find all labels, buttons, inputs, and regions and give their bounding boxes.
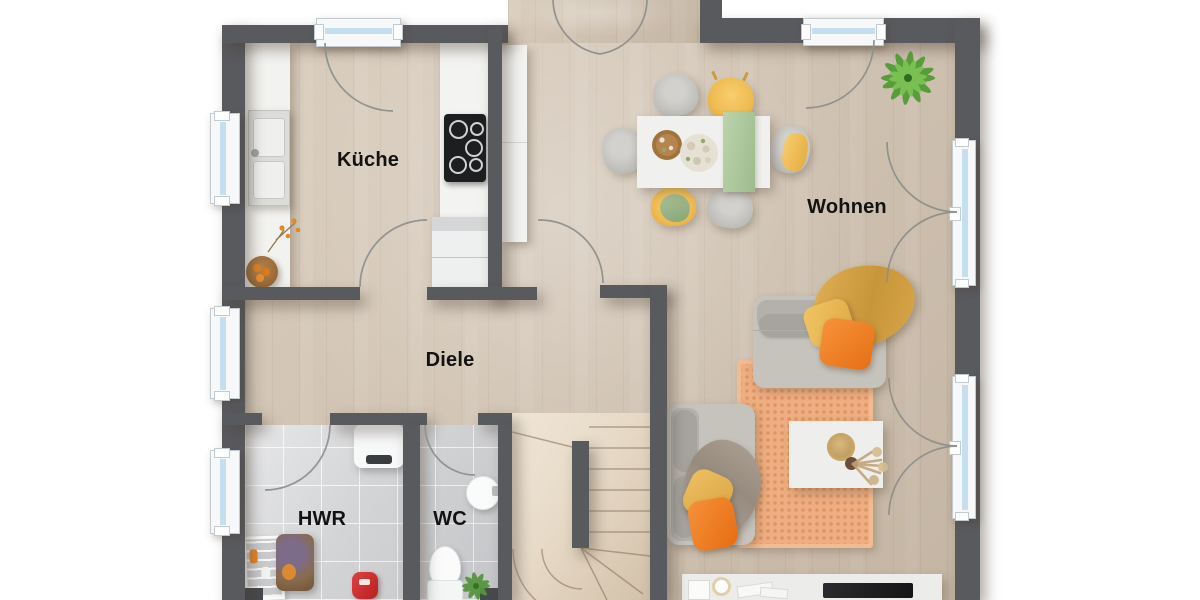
refrigerator-top bbox=[432, 217, 490, 231]
window-frame-tab bbox=[393, 24, 403, 40]
door-glass bbox=[962, 385, 968, 510]
room-label-kueche: Küche bbox=[337, 149, 399, 172]
window-frame-tab bbox=[214, 448, 230, 458]
cabinet-seam bbox=[502, 142, 527, 143]
decor-ring bbox=[712, 577, 731, 596]
fruit bbox=[256, 274, 264, 282]
laundry-item bbox=[261, 567, 270, 579]
window-frame-tab bbox=[214, 391, 230, 401]
door-glass bbox=[962, 149, 968, 277]
glazed-door-top-right bbox=[803, 18, 884, 46]
window-glass bbox=[220, 122, 226, 195]
refrigerator-seam bbox=[432, 257, 490, 258]
burner-icon bbox=[449, 120, 468, 139]
room-label-wohnen: Wohnen bbox=[807, 196, 887, 219]
faucet-icon bbox=[251, 149, 259, 157]
wall-hwr-top-right bbox=[330, 413, 427, 425]
window-diele-left bbox=[210, 308, 240, 399]
decor-sticks bbox=[760, 587, 789, 599]
window-frame-tab bbox=[876, 24, 886, 40]
pillow-orange bbox=[686, 495, 740, 552]
cooktop bbox=[444, 114, 486, 182]
kitchen-sink-unit bbox=[248, 110, 290, 206]
wall-stair-void bbox=[572, 441, 589, 548]
room-label-wc: WC bbox=[433, 508, 467, 531]
dark-appliance bbox=[243, 588, 263, 600]
wall-top-stub bbox=[700, 0, 722, 18]
window-kitchen-left bbox=[210, 113, 240, 204]
fruit-bowl bbox=[246, 256, 278, 288]
window-frame-tab bbox=[214, 196, 230, 206]
laundry-item bbox=[249, 549, 257, 563]
laundry-basket bbox=[276, 534, 314, 591]
glazed-door-kitchen-top bbox=[316, 18, 401, 47]
french-door-living bbox=[952, 376, 976, 519]
room-label-diele: Diele bbox=[426, 349, 475, 372]
burner-icon bbox=[470, 122, 484, 136]
tv-sideboard bbox=[682, 574, 942, 600]
window-frame-tab bbox=[214, 306, 230, 316]
wall-kitchen-right bbox=[488, 25, 502, 300]
window-frame-tab bbox=[955, 138, 969, 147]
window-glass bbox=[220, 317, 226, 390]
tv bbox=[823, 583, 913, 598]
boiler-vent bbox=[366, 455, 392, 464]
window-frame-tab bbox=[801, 24, 811, 40]
wall-wc-right bbox=[498, 425, 512, 600]
window-frame-tab bbox=[214, 526, 230, 536]
fruit bbox=[253, 264, 261, 272]
toy-red bbox=[352, 572, 378, 599]
burner-icon bbox=[469, 158, 483, 172]
books-stack bbox=[688, 580, 710, 600]
burner-icon bbox=[465, 139, 483, 157]
window-frame-tab bbox=[955, 279, 969, 288]
toy-detail bbox=[359, 579, 370, 585]
vase bbox=[845, 457, 858, 470]
window-hwr-left bbox=[210, 450, 240, 534]
wall-kitchen-bottom-right bbox=[427, 287, 537, 300]
toilet-tank bbox=[427, 580, 463, 600]
window-glass bbox=[220, 459, 226, 525]
burner-icon bbox=[449, 156, 467, 174]
wall-wc-top bbox=[478, 413, 512, 425]
wall-living-left bbox=[650, 285, 667, 600]
window-frame-tab bbox=[314, 24, 324, 40]
refrigerator bbox=[432, 217, 490, 287]
sink-basin bbox=[253, 161, 285, 199]
wall-kitchen-bottom-left bbox=[222, 287, 360, 300]
window-glass bbox=[325, 28, 392, 34]
window-glass bbox=[812, 28, 875, 34]
pillow-orange bbox=[818, 317, 876, 372]
wall-hwr-wc-divider bbox=[403, 425, 420, 600]
boiler bbox=[354, 424, 404, 468]
wood-floor-hall-top bbox=[508, 0, 700, 43]
door-handle-icon bbox=[949, 441, 961, 455]
window-frame-tab bbox=[214, 111, 230, 121]
window-frame-tab bbox=[955, 374, 969, 383]
tall-cabinet bbox=[502, 45, 527, 242]
table-runner-green bbox=[723, 112, 755, 192]
window-frame-tab bbox=[955, 512, 969, 521]
laundry-item bbox=[282, 564, 296, 580]
room-label-hwr: HWR bbox=[298, 508, 346, 531]
floor-plan-ground-floor: Küche Wohnen Diele HWR WC bbox=[0, 0, 1200, 600]
french-door-dining bbox=[952, 140, 976, 286]
door-handle-icon bbox=[949, 207, 961, 221]
wall-hwr-top-left bbox=[222, 413, 262, 425]
